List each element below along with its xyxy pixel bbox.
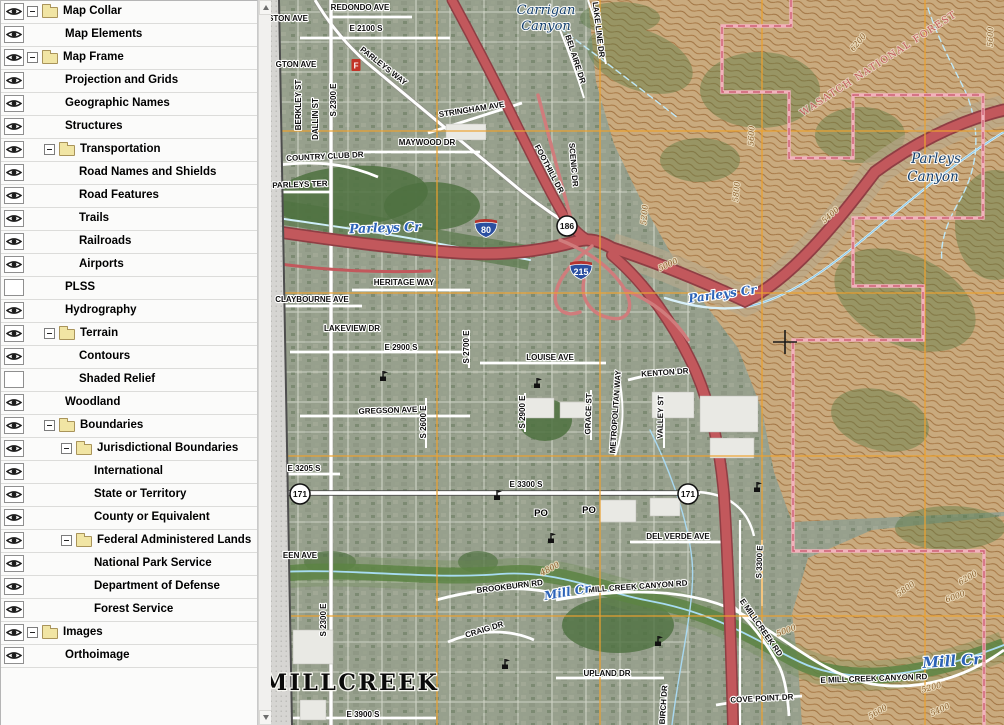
layer-label[interactable]: Airports [79, 258, 124, 270]
eye-icon [6, 558, 22, 569]
layer-label[interactable]: PLSS [65, 281, 95, 293]
visibility-eye-toggle[interactable] [4, 440, 24, 457]
eye-icon [6, 328, 22, 339]
layer-row[interactable]: Road Features [1, 185, 257, 208]
layer-label[interactable]: Orthoimage [65, 649, 130, 661]
place-label: Canyon [521, 19, 571, 34]
street-label: S 2900 E [518, 395, 527, 429]
street-label: HERITAGE WAY [374, 278, 435, 287]
layer-row[interactable]: Boundaries [1, 415, 257, 438]
layer-label[interactable]: Map Elements [65, 28, 142, 40]
street-label: EEN AVE [283, 551, 318, 560]
collapse-toggle-minus[interactable] [61, 535, 72, 546]
folder-icon [76, 536, 92, 547]
collapse-toggle-minus[interactable] [27, 6, 38, 17]
visibility-eye-toggle[interactable] [4, 118, 24, 135]
visibility-eye-toggle[interactable] [4, 302, 24, 319]
layer-row[interactable]: International [1, 461, 257, 484]
layer-label[interactable]: Images [63, 626, 103, 638]
eye-icon [6, 213, 22, 224]
layer-row[interactable]: County or Equivalent [1, 507, 257, 530]
street-label: DALLIN ST [311, 98, 320, 140]
layer-row[interactable]: National Park Service [1, 553, 257, 576]
eye-icon [6, 489, 22, 500]
eye-icon [6, 581, 22, 592]
layer-label[interactable]: Contours [79, 350, 130, 362]
visibility-eye-toggle[interactable] [4, 601, 24, 618]
layer-row[interactable]: Structures [1, 116, 257, 139]
layer-row[interactable]: Hydrography [1, 300, 257, 323]
layer-row[interactable]: Airports [1, 254, 257, 277]
eye-icon [6, 29, 22, 40]
layer-label[interactable]: Trails [79, 212, 109, 224]
street-label: UPLAND DR [583, 669, 630, 678]
street-label: DEL VERDE AVE [646, 532, 710, 541]
layer-label[interactable]: State or Territory [94, 488, 186, 500]
layer-row[interactable]: Orthoimage [1, 645, 257, 668]
eye-icon [6, 259, 22, 270]
folder-icon [42, 53, 58, 64]
eye-icon [6, 144, 22, 155]
svg-text:215: 215 [573, 267, 588, 277]
post-office-label: PO [534, 508, 548, 519]
street-label: REDONDO AVE [331, 3, 390, 12]
folder-icon [59, 421, 75, 432]
visibility-eye-toggle[interactable] [4, 394, 24, 411]
visibility-eye-toggle[interactable] [4, 26, 24, 43]
place-label: MILLCREEK [271, 670, 439, 696]
street-label: LAKEVIEW DR [324, 324, 380, 333]
street-label: E 3900 S [347, 710, 381, 719]
collapse-toggle-minus[interactable] [61, 443, 72, 454]
street-label: E 2900 S [385, 343, 419, 352]
map-view[interactable]: REDONDO AVEE 2100 SPARLEYS WAYSTON AVEGT… [271, 0, 1004, 725]
eye-icon [6, 351, 22, 362]
visibility-eye-toggle[interactable] [4, 463, 24, 480]
layer-row[interactable]: PLSS [1, 277, 257, 300]
svg-text:171: 171 [681, 489, 695, 499]
visibility-eye-toggle[interactable] [4, 647, 24, 664]
street-label: S 2700 E [462, 330, 471, 364]
layer-label[interactable]: Terrain [80, 327, 118, 339]
layer-label[interactable]: Structures [65, 120, 123, 132]
layer-label[interactable]: Federal Administered Lands [97, 534, 251, 546]
eye-icon [6, 420, 22, 431]
eye-icon [6, 236, 22, 247]
visibility-eye-toggle[interactable] [4, 325, 24, 342]
visibility-eye-toggle[interactable] [4, 555, 24, 572]
post-office-label: PO [582, 505, 596, 516]
folder-icon [59, 145, 75, 156]
route-shield: 171 [290, 484, 310, 504]
visibility-empty-toggle[interactable] [4, 371, 24, 388]
visibility-eye-toggle[interactable] [4, 233, 24, 250]
folder-icon [42, 7, 58, 18]
layer-label[interactable]: Projection and Grids [65, 74, 178, 86]
application-window: Map CollarMap ElementsMap FrameProjectio… [0, 0, 1004, 725]
collapse-toggle-minus[interactable] [44, 420, 55, 431]
street-label: CLAYBOURNE AVE [275, 295, 349, 304]
layer-row[interactable]: Terrain [1, 323, 257, 346]
layer-row[interactable]: Contours [1, 346, 257, 369]
eye-icon [6, 6, 22, 17]
layer-label[interactable]: Transportation [80, 143, 161, 155]
street-label: S 2300 E [319, 603, 328, 637]
eye-icon [6, 650, 22, 661]
eye-icon [6, 535, 22, 546]
layer-label[interactable]: Jurisdictional Boundaries [97, 442, 238, 454]
eye-icon [6, 466, 22, 477]
street-label: S 2300 E [329, 83, 338, 117]
street-label: GRACE ST [583, 393, 593, 435]
eye-icon [6, 397, 22, 408]
visibility-eye-toggle[interactable] [4, 509, 24, 526]
visibility-eye-toggle[interactable] [4, 348, 24, 365]
svg-text:F: F [354, 62, 359, 71]
visibility-eye-toggle[interactable] [4, 3, 24, 20]
visibility-eye-toggle[interactable] [4, 624, 24, 641]
down-arrow-icon [263, 715, 269, 720]
layer-row[interactable]: State or Territory [1, 484, 257, 507]
folder-icon [42, 628, 58, 639]
layer-label[interactable]: Road Features [79, 189, 159, 201]
visibility-eye-toggle[interactable] [4, 578, 24, 595]
layer-row[interactable]: Railroads [1, 231, 257, 254]
folder-icon [76, 444, 92, 455]
street-label: E 3205 S [288, 464, 322, 473]
layer-row[interactable]: Jurisdictional Boundaries [1, 438, 257, 461]
eye-icon [6, 305, 22, 316]
eye-icon [6, 512, 22, 523]
contour-elevation-label: 5600 [986, 27, 996, 48]
layer-label[interactable]: Geographic Names [65, 97, 170, 109]
layer-label[interactable]: Map Frame [63, 51, 124, 63]
street-label: BERKLEY ST [294, 80, 303, 131]
layer-label[interactable]: County or Equivalent [94, 511, 210, 523]
layer-label[interactable]: Map Collar [63, 5, 122, 17]
layer-label[interactable]: Boundaries [80, 419, 143, 431]
stream-label: Parleys Cr [348, 219, 423, 237]
street-label: VALLEY ST [656, 395, 666, 439]
layer-row[interactable]: Shaded Relief [1, 369, 257, 392]
layer-label[interactable]: Road Names and Shields [79, 166, 216, 178]
visibility-eye-toggle[interactable] [4, 49, 24, 66]
svg-text:80: 80 [481, 225, 491, 235]
eye-icon [6, 190, 22, 201]
folder-icon [59, 329, 75, 340]
street-label: MAYWOOD DR [399, 138, 456, 147]
layer-row[interactable]: Map Frame [1, 47, 257, 70]
collapse-toggle-minus[interactable] [44, 144, 55, 155]
street-label: E 2100 S [350, 24, 384, 33]
layer-row[interactable]: Forest Service [1, 599, 257, 622]
contour-elevation-label: 5600 [746, 125, 756, 146]
layer-label[interactable]: Woodland [65, 396, 120, 408]
collapse-toggle-minus[interactable] [44, 328, 55, 339]
eye-icon [6, 52, 22, 63]
fire-station-icon: F [352, 59, 361, 71]
eye-icon [6, 75, 22, 86]
contour-elevation-label: 5800 [731, 181, 742, 202]
layer-label[interactable]: Forest Service [94, 603, 173, 615]
layer-row[interactable]: Map Elements [1, 24, 257, 47]
visibility-eye-toggle[interactable] [4, 532, 24, 549]
layer-row[interactable]: Projection and Grids [1, 70, 257, 93]
street-label: STON AVE [271, 14, 309, 23]
contour-elevation-label: 5200 [639, 204, 650, 225]
layer-row[interactable]: Map Collar [1, 1, 257, 24]
street-label: S 3300 E [754, 545, 764, 579]
route-shield: 186 [557, 216, 577, 236]
layer-row[interactable]: Road Names and Shields [1, 162, 257, 185]
layer-label[interactable]: International [94, 465, 163, 477]
street-label: E 3300 S [510, 480, 544, 489]
layer-label[interactable]: Department of Defense [94, 580, 220, 592]
visibility-eye-toggle[interactable] [4, 95, 24, 112]
visibility-eye-toggle[interactable] [4, 141, 24, 158]
place-label: Canyon [907, 169, 959, 185]
eye-icon [6, 604, 22, 615]
street-label: LOUISE AVE [526, 353, 574, 362]
street-label: S 2600 E [419, 405, 428, 439]
layer-label[interactable]: National Park Service [94, 557, 212, 569]
street-label: GTON AVE [276, 60, 317, 69]
layer-row[interactable]: Transportation [1, 139, 257, 162]
layer-row[interactable]: Trails [1, 208, 257, 231]
layer-row[interactable]: Federal Administered Lands [1, 530, 257, 553]
layer-label[interactable]: Railroads [79, 235, 131, 247]
visibility-eye-toggle[interactable] [4, 256, 24, 273]
collapse-toggle-minus[interactable] [27, 52, 38, 63]
eye-icon [6, 121, 22, 132]
collapse-toggle-minus[interactable] [27, 627, 38, 638]
visibility-eye-toggle[interactable] [4, 164, 24, 181]
layer-row[interactable]: Geographic Names [1, 93, 257, 116]
visibility-eye-toggle[interactable] [4, 187, 24, 204]
visibility-eye-toggle[interactable] [4, 417, 24, 434]
panel-scrollbar[interactable] [258, 0, 271, 725]
eye-icon [6, 443, 22, 454]
layer-label[interactable]: Hydrography [65, 304, 137, 316]
visibility-empty-toggle[interactable] [4, 279, 24, 296]
layers-panel: Map CollarMap ElementsMap FrameProjectio… [0, 0, 258, 725]
layer-row[interactable]: Images [1, 622, 257, 645]
layer-row[interactable]: Woodland [1, 392, 257, 415]
place-label: Carrigan [517, 3, 576, 18]
visibility-eye-toggle[interactable] [4, 486, 24, 503]
eye-icon [6, 627, 22, 638]
route-shield: 171 [678, 484, 698, 504]
place-label: Parleys [910, 151, 961, 167]
up-arrow-icon [263, 5, 269, 10]
visibility-eye-toggle[interactable] [4, 72, 24, 89]
eye-icon [6, 98, 22, 109]
svg-text:171: 171 [293, 489, 307, 499]
eye-icon [6, 167, 22, 178]
svg-text:186: 186 [560, 221, 574, 231]
layer-row[interactable]: Department of Defense [1, 576, 257, 599]
layer-label[interactable]: Shaded Relief [79, 373, 155, 385]
visibility-eye-toggle[interactable] [4, 210, 24, 227]
